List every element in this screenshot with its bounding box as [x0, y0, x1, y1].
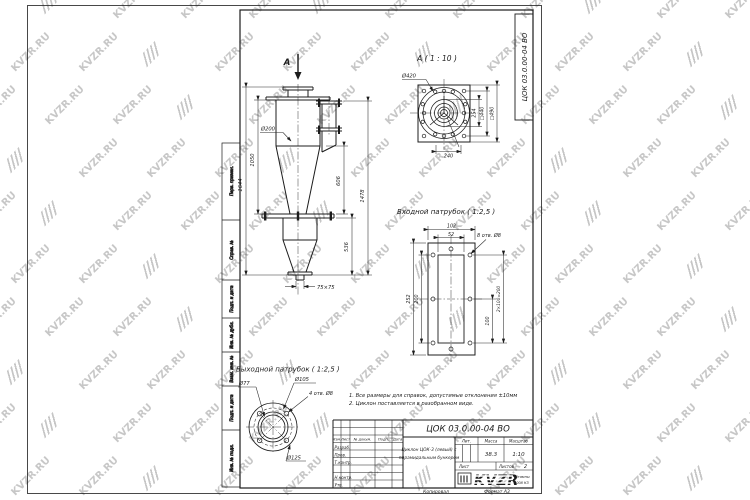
tb-row-tkontr: Т.контр.	[335, 460, 352, 465]
tb-name-line-2: пирамидальным бункером	[399, 455, 460, 461]
dim-outlet-outer-dia: Ø125	[286, 455, 302, 462]
dim-inlet-hole-step: 100	[485, 316, 491, 325]
margin-col-inv-podl: Инв. № подл.	[229, 444, 234, 472]
tb-sheet-label: Лист	[458, 464, 470, 469]
tb-header-doc: № докум.	[353, 437, 372, 441]
tb-lit-header: Лит.	[461, 438, 471, 443]
tb-designation: ЦОК 03.0.00-04 ВО	[426, 425, 510, 435]
margin-col-vzam-inv: Взам. инв. №	[229, 355, 234, 382]
kvzr-logo: KVZR Штампы 2008 КЗ	[458, 473, 530, 489]
tb-row-razrab: Разраб.	[335, 445, 351, 450]
tb-sheets-value: 2	[524, 464, 527, 470]
view-a-title: А ( 1 : 10 )	[416, 54, 457, 63]
tb-scale-header: Масштаб	[509, 438, 529, 443]
outlet-holes-note: 4 отв. Ø8	[309, 390, 333, 397]
main-front-view: А	[238, 54, 372, 295]
notes: 1. Все размеры для справок, допустимые о…	[349, 393, 517, 407]
dim-outlet-inner-dia: Ø77	[238, 380, 250, 387]
margin-col-sprav: Справ. №	[229, 240, 234, 259]
dim-view-a-bottom: 240	[444, 154, 453, 160]
outlet-view-title: Выходной патрубок ( 1:2,5 )	[236, 366, 340, 374]
dim-bunker-height: 536	[344, 241, 350, 252]
outlet-flange-view: Выходной патрубок ( 1:2,5 )	[236, 366, 340, 462]
dim-inlet-width-inner: 52	[448, 232, 454, 238]
tb-mass-header: Масса	[485, 438, 498, 443]
section-arrow-icon	[295, 72, 302, 80]
dim-height-upper: 1050	[250, 153, 256, 167]
tb-header-sign: Подп.	[378, 437, 389, 441]
margin-col-perv-primen: Перв. примен.	[229, 166, 234, 196]
dim-outlet-square: 75×75	[317, 285, 335, 291]
inlet-holes-note: 8 отв. Ø8	[477, 232, 501, 239]
title-block: Изм. Лист № докум. Подп. Дата Разраб. Пр…	[333, 420, 533, 495]
dim-inlet-width: 102	[447, 224, 456, 230]
tb-name-line-1: Циклон ЦОК-3 (левый) с	[402, 447, 458, 453]
dim-inlet-height-inner: 200	[414, 294, 420, 303]
dim-flange-diameter: Ø420	[401, 73, 417, 80]
inlet-flange-view: Входной патрубок ( 1:2,5 )	[397, 208, 507, 362]
footer-copied-label: Копировал	[423, 489, 449, 495]
dim-cylinder-diameter: Ø200	[260, 126, 276, 133]
engineering-drawing: Перв. примен. Справ. № Подп. и дата Инв.…	[0, 0, 750, 500]
section-label: А	[283, 58, 291, 68]
margin-col-inv-dubl: Инв. № дубл.	[229, 321, 234, 348]
dim-view-a-inner: 254	[472, 108, 478, 117]
flange-bolt-symbols	[264, 99, 340, 221]
dim-square-440: □440	[480, 107, 486, 121]
note-line-2: 2. Циклон поставляется в разобранном вид…	[349, 401, 474, 407]
rotated-designation-box: ЦОК 03.0.00-04 ВО	[515, 14, 533, 120]
tb-logo-note-1: Штампы	[514, 475, 530, 479]
margin-col-podp-data-2: Подп. и дата	[229, 394, 234, 422]
tb-header-list: Лист	[340, 437, 351, 441]
tb-header-date: Дата	[392, 437, 402, 441]
section-view-a: А ( 1 : 10 )	[401, 54, 500, 160]
designation-vertical-text: ЦОК 03.0.00-04 ВО	[521, 32, 529, 101]
tb-mass-value: 38.3	[485, 452, 498, 458]
dim-outlet-bolt-dia: Ø105	[294, 376, 310, 383]
dim-inlet-hole-span: 2×100=200	[496, 286, 502, 313]
tb-row-prov: Пров.	[335, 452, 347, 457]
tb-row-nkontr: Н.контр.	[335, 475, 353, 480]
margin-col-podp-data-1: Подп. и дата	[229, 285, 234, 313]
tb-logo-note-2: 2008 КЗ	[514, 481, 530, 485]
drawing-sheet-scan: KVZR.RUKVZR.RUKVZR.RUKVZR.RUKVZR.RUKVZR.…	[0, 0, 750, 500]
tb-scale-value: 1:10	[512, 452, 525, 458]
tb-row-utv: Утв.	[335, 482, 343, 487]
dim-inlet-height: 252	[406, 294, 412, 303]
dim-height-total: 1644	[238, 178, 244, 191]
dim-right-total: 1478	[360, 189, 366, 203]
note-line-1: 1. Все размеры для справок, допустимые о…	[349, 393, 517, 399]
margin-column-boxes: Перв. примен. Справ. № Подп. и дата Инв.…	[222, 143, 240, 487]
inlet-view-title: Входной патрубок ( 1:2,5 )	[397, 208, 495, 216]
dim-square-490: □490	[490, 107, 496, 121]
tb-sheets-label: Листов	[498, 464, 515, 469]
footer-format-label: Формат А3	[484, 489, 510, 495]
dim-cone-height: 606	[336, 175, 342, 186]
